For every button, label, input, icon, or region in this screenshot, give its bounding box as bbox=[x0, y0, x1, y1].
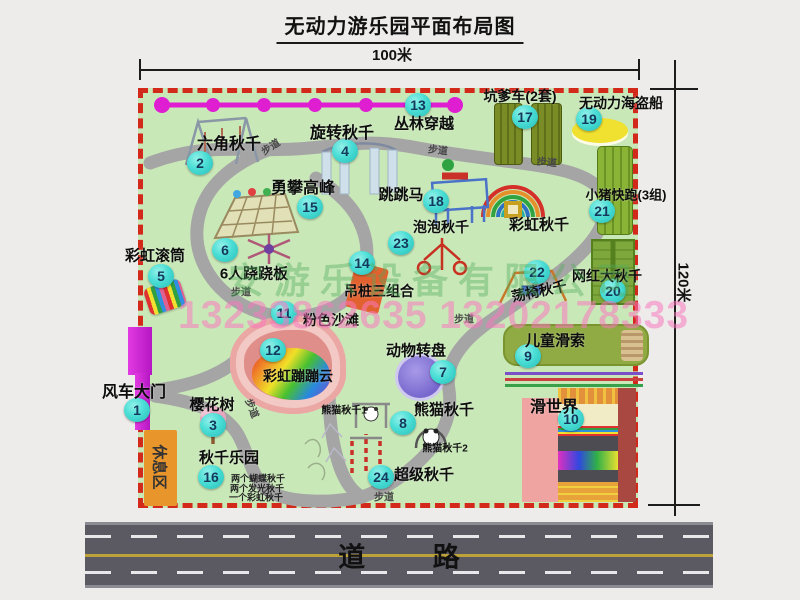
zipline-cable bbox=[505, 372, 643, 375]
piggy-run-track bbox=[597, 146, 633, 235]
slide-band bbox=[558, 482, 618, 502]
slide-band bbox=[558, 426, 618, 436]
dimension-tick-right-bottom bbox=[648, 504, 700, 506]
zipline-cable bbox=[505, 384, 643, 387]
dimension-tick-top-left bbox=[139, 59, 141, 80]
pirate-ship-icon bbox=[572, 118, 628, 143]
dimension-width-label: 100米 bbox=[372, 44, 412, 65]
windmill-gate-post bbox=[135, 373, 150, 430]
slide-band bbox=[558, 470, 618, 482]
dimension-tick-right-top bbox=[650, 88, 698, 90]
dimension-tick-top-right bbox=[638, 59, 640, 80]
windmill-gate-icon bbox=[128, 327, 152, 375]
road: 道 路 bbox=[85, 522, 713, 588]
watermark-phone: 13233862635 13202178333 bbox=[178, 294, 689, 338]
page-title: 无动力游乐园平面布局图 bbox=[277, 10, 524, 44]
animal-carousel-icon bbox=[398, 356, 442, 398]
road-label: 道 路 bbox=[338, 536, 490, 575]
playground-layout-page: { "title": "无动力游乐园平面布局图", "dimensions": … bbox=[0, 0, 800, 600]
dimension-line-top bbox=[140, 69, 640, 71]
rainbow-bounce-cloud-icon bbox=[252, 348, 330, 400]
slide-band bbox=[558, 388, 618, 404]
rest-area-label: 休息区 bbox=[150, 444, 171, 489]
slide-world-red-strip bbox=[618, 388, 636, 502]
rainbow-slide-band bbox=[558, 451, 618, 470]
slide-world-pink-strip bbox=[522, 398, 558, 502]
pit-car-track-1 bbox=[494, 103, 523, 165]
pit-car-track-2 bbox=[531, 103, 562, 165]
slide-band bbox=[558, 436, 618, 451]
zipline-cable bbox=[505, 378, 643, 381]
slide-world-slides bbox=[558, 388, 618, 502]
slide-band bbox=[558, 404, 618, 426]
